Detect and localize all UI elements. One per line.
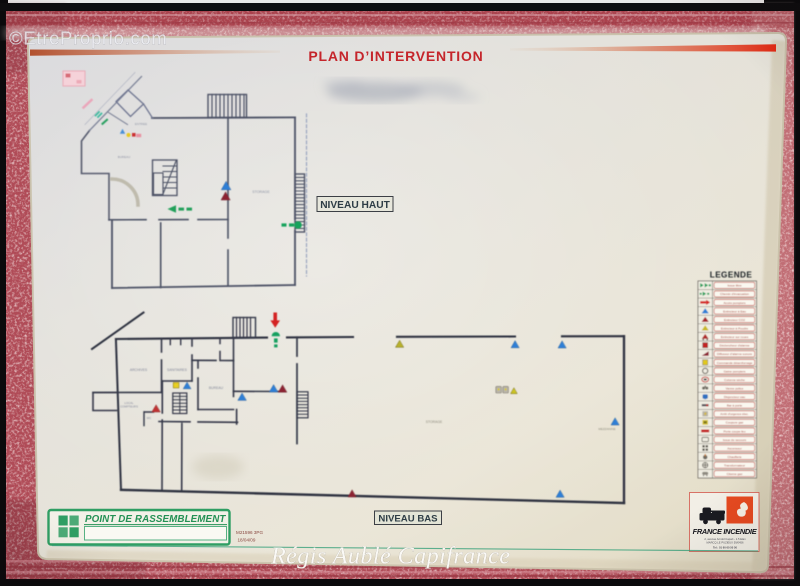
svg-text:Bar à porte: Bar à porte [727,404,743,408]
svg-text:MARCQ LE PUZIEUX 59/0456: MARCQ LE PUZIEUX 59/0456 [707,541,744,545]
svg-text:Extincteur CO2: Extincteur CO2 [724,318,745,322]
svg-text:Régis Aublé Capifrance: Régis Aublé Capifrance [270,543,510,570]
svg-text:Extincteur à Eau: Extincteur à Eau [723,309,746,313]
svg-text:Extincteur sur roues: Extincteur sur roues [721,335,749,339]
svg-text:Extincteur à Poudre: Extincteur à Poudre [721,327,748,331]
svg-text:STORAGE: STORAGE [426,420,443,424]
svg-text:Disjoncteur eau: Disjoncteur eau [724,395,746,399]
svg-text:Transformateur: Transformateur [724,464,745,468]
svg-text:M21596 3PG: M21596 3PG [236,530,263,535]
svg-text:LEGENDE: LEGENDE [710,271,753,280]
svg-text:Gaine pompiers: Gaine pompiers [724,369,746,373]
svg-text:18/04/09: 18/04/09 [238,538,256,543]
svg-text:Tel : 01 60 60 50 50: Tel : 01 60 60 50 50 [713,545,738,549]
svg-text:BUREAU: BUREAU [209,386,224,390]
svg-text:BUREAU: BUREAU [118,155,131,159]
svg-text:SANITAIRES: SANITAIRES [167,368,188,372]
svg-text:Issue de secours: Issue de secours [723,438,747,442]
svg-text:Colonne sèche: Colonne sèche [724,378,745,382]
svg-text:Coupure gaz: Coupure gaz [726,421,744,425]
svg-text:ENTREE: ENTREE [135,122,147,126]
svg-text:Issue libre: Issue libre [727,284,741,288]
svg-text:Arrêt d'urgence élec.: Arrêt d'urgence élec. [720,412,749,416]
svg-text:PLAN D’INTERVENTION: PLAN D’INTERVENTION [308,48,483,64]
svg-text:Vanne police: Vanne police [726,387,744,391]
svg-text:Ascenseur: Ascenseur [727,446,742,450]
svg-text:FRANCE INCENDIE: FRANCE INCENDIE [693,527,758,536]
svg-text:©EtreProprio.com: ©EtreProprio.com [9,28,168,49]
svg-text:Chemin d'évacuation: Chemin d'évacuation [720,292,749,296]
svg-text:MEZZANINE: MEZZANINE [598,427,615,431]
svg-text:Porte coupe-feu: Porte coupe-feu [723,429,745,433]
svg-text:ARCHIVES: ARCHIVES [130,368,148,372]
svg-text:NIVEAU HAUT: NIVEAU HAUT [320,200,390,211]
svg-text:Accès pompiers: Accès pompiers [723,301,745,305]
svg-text:Citerne gaz: Citerne gaz [727,472,743,476]
svg-text:WC: WC [147,416,152,420]
svg-text:Déclencheur d'alarme: Déclencheur d'alarme [720,344,750,348]
svg-text:STORAGE: STORAGE [252,190,270,194]
svg-text:2, avenue Arnold Capart - 1.5: 2, avenue Arnold Capart - 1.5 Elan [704,537,746,541]
svg-text:COMPTEURS: COMPTEURS [120,405,138,409]
svg-text:POINT DE RASSEMBLEMENT: POINT DE RASSEMBLEMENT [85,514,226,525]
svg-text:Chaufferie: Chaufferie [727,455,741,459]
svg-text:Diffuseur d'alarme sonore: Diffuseur d'alarme sonore [717,352,753,356]
svg-text:NIVEAU BAS: NIVEAU BAS [378,514,438,525]
svg-text:Commande désenfumage: Commande désenfumage [717,361,753,365]
